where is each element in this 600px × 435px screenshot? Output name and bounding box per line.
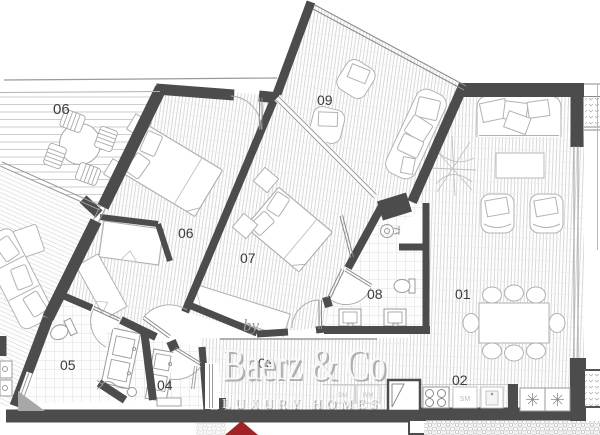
svg-text:04: 04 — [157, 377, 173, 393]
svg-text:01: 01 — [455, 286, 471, 302]
svg-text:06: 06 — [53, 101, 70, 118]
svg-text:Baerz & Co: Baerz & Co — [222, 340, 386, 389]
svg-text:06: 06 — [178, 225, 194, 241]
svg-text:02: 02 — [452, 372, 468, 388]
svg-text:SM: SM — [460, 396, 471, 403]
svg-text:by: by — [243, 316, 260, 335]
svg-text:07: 07 — [240, 250, 256, 266]
svg-text:08: 08 — [367, 286, 383, 302]
svg-text:09: 09 — [317, 92, 333, 108]
svg-text:05: 05 — [60, 357, 76, 373]
